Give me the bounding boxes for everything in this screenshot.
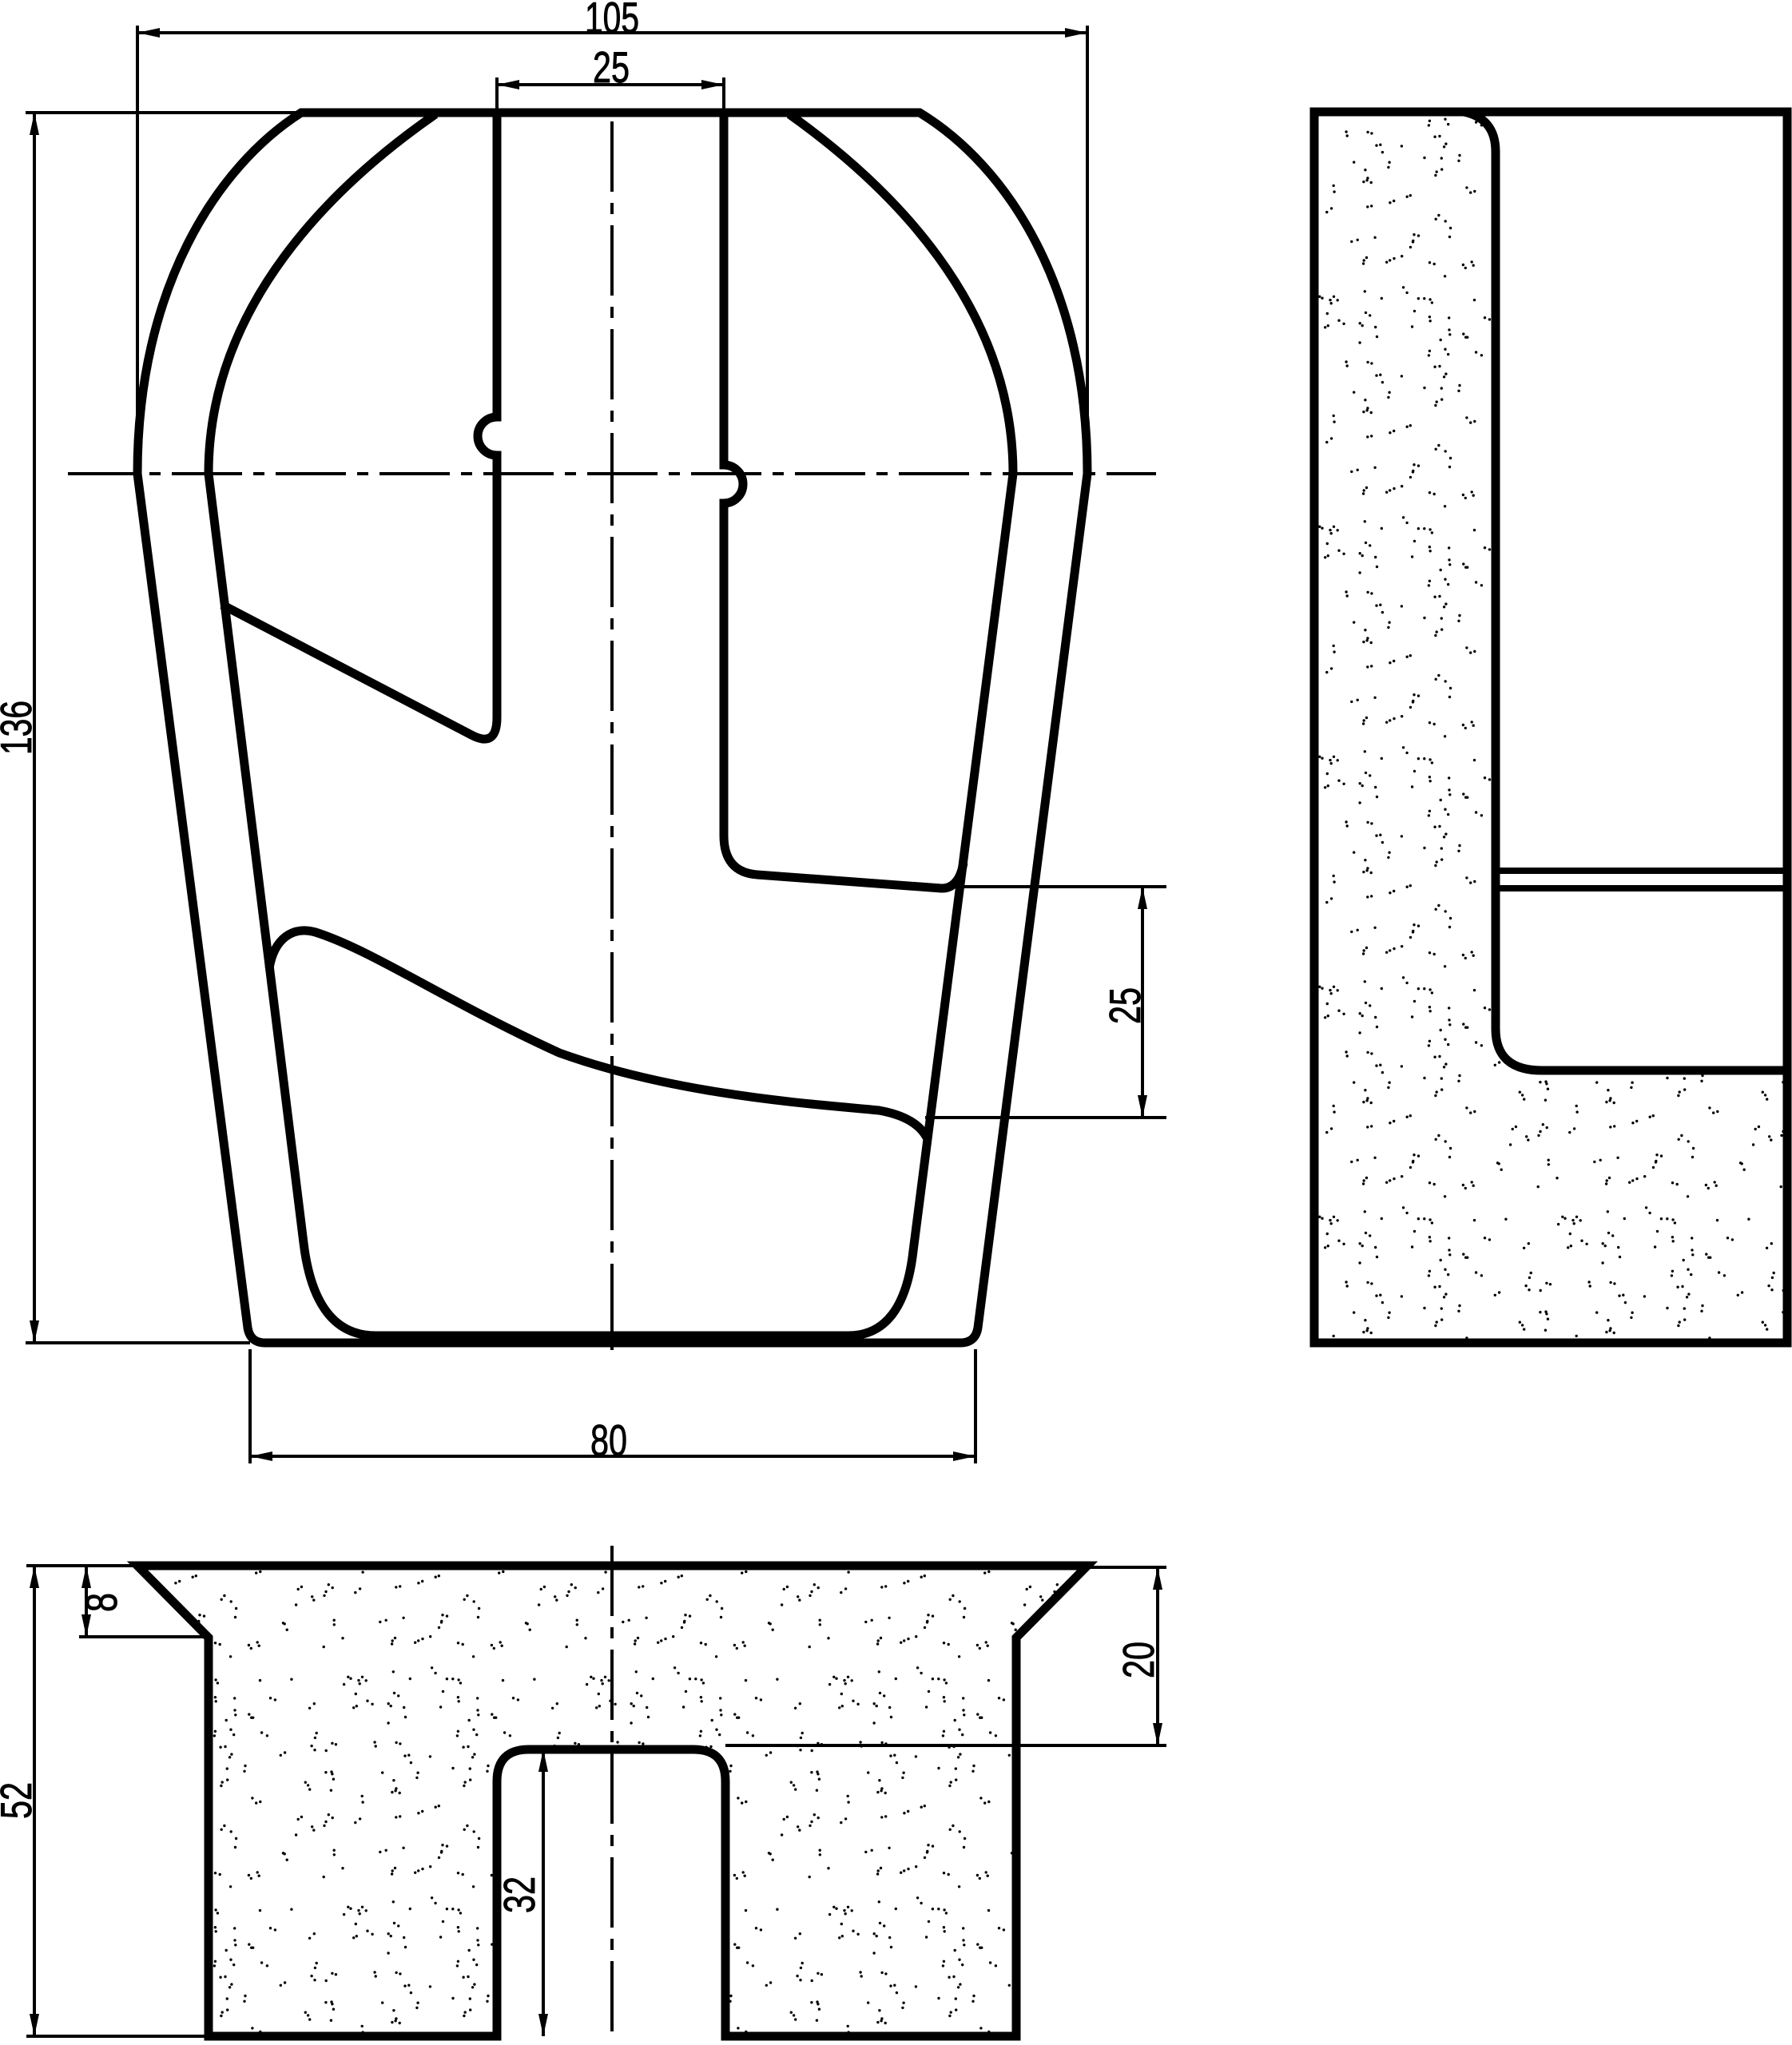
svg-text:105: 105 <box>585 0 639 42</box>
svg-text:25: 25 <box>593 42 630 92</box>
svg-text:8: 8 <box>77 1593 126 1612</box>
svg-text:32: 32 <box>495 1876 544 1913</box>
svg-text:52: 52 <box>0 1782 41 1819</box>
svg-text:80: 80 <box>590 1416 627 1465</box>
svg-text:25: 25 <box>1100 987 1150 1024</box>
svg-text:136: 136 <box>0 701 41 755</box>
svg-text:20: 20 <box>1114 1642 1163 1678</box>
